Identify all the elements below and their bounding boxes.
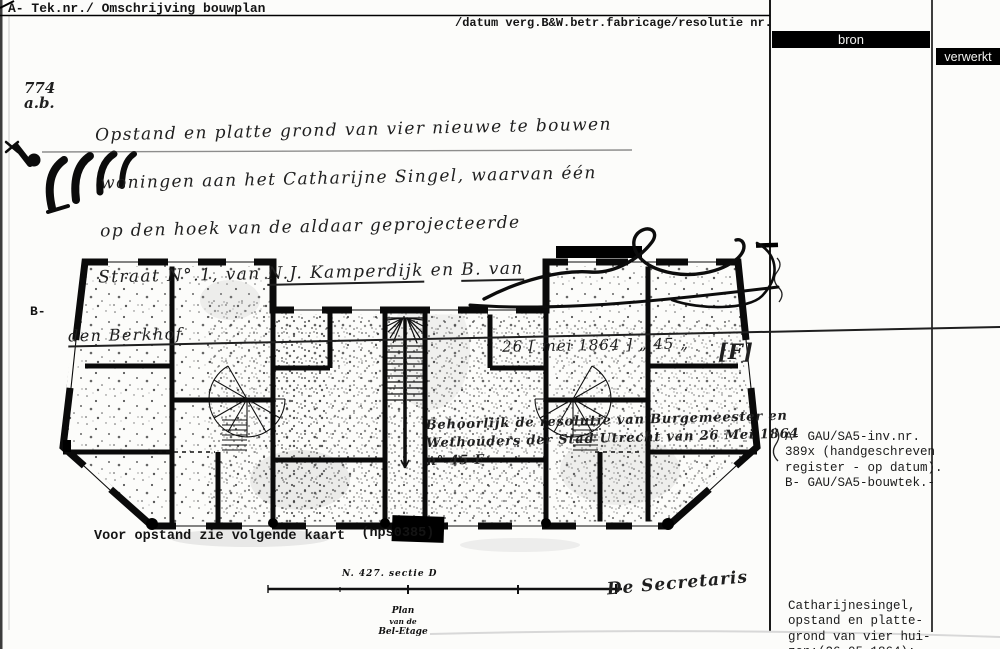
resolution-letter: [F] — [718, 339, 1000, 364]
verwerkt-column-header: verwerkt — [936, 48, 1000, 65]
scale-bar — [268, 584, 622, 594]
header-teknr-label: A- Tek.nr./ Omschrijving bouwplan — [8, 1, 1000, 16]
plan-sectie-ref: N. 427. sectie D — [342, 569, 1000, 579]
header-datum-label: /datum verg.B&W.betr.fabricage/resolutie… — [455, 16, 1000, 30]
drawing-number: 774 a.b. — [24, 81, 1000, 111]
entry-description: Catharijnesingel, opstand en platte- gro… — [788, 599, 1000, 649]
typed-note: Voor opstand zie volgende kaart (nps0385… — [94, 529, 1000, 544]
archive-card: A- Tek.nr./ Omschrijving bouwplan /datum… — [0, 0, 1000, 649]
builder-name: N.J. Kamperdijk — [267, 261, 424, 286]
plan-title: Plan van de Bel-Etage — [368, 606, 438, 638]
builder-name: B. van — [461, 259, 524, 282]
bron-column-header: bron — [772, 31, 930, 48]
source-register-entry: A- GAU/SA5-inv.nr. 389x (handgeschreven … — [785, 430, 1000, 492]
card-reference: (nps0385) — [361, 526, 434, 541]
